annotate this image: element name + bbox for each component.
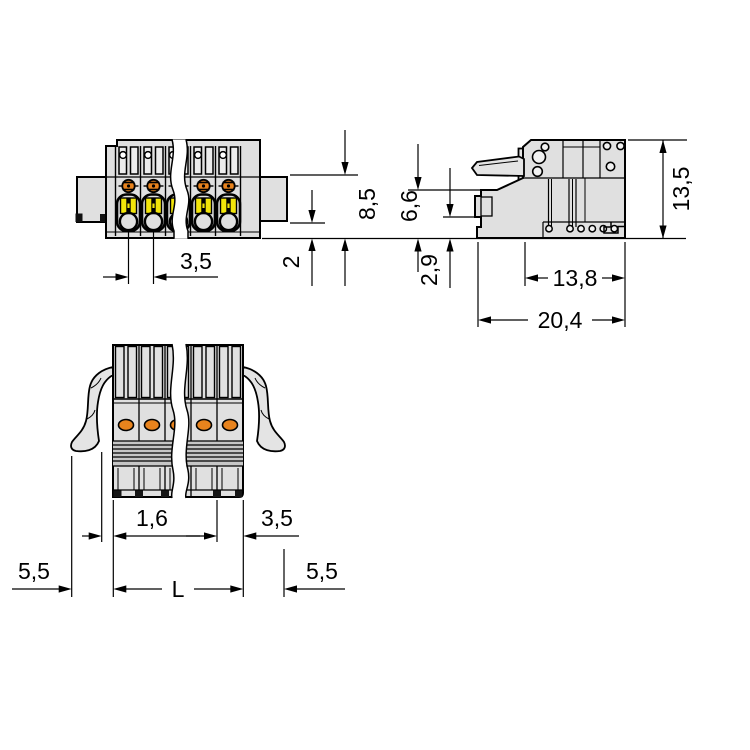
front-view [76, 140, 288, 239]
dim-label-height: 8,5 [354, 188, 380, 220]
side-view [472, 140, 625, 238]
dim-label-lever-ext-left: 5,5 [18, 558, 50, 584]
latch-lever [472, 157, 524, 177]
side-housing [475, 140, 625, 238]
dim-label-pitch: 3,5 [180, 248, 212, 274]
dim-label-end-pitch: 3,5 [261, 505, 293, 531]
bottom-view [71, 344, 285, 498]
locking-lever-right [243, 367, 285, 451]
dim-label-lever-offset: 1,6 [136, 505, 168, 531]
dim-label-latch-height: 2,9 [416, 254, 442, 286]
dim-label-rail-offset: 2 [278, 256, 304, 269]
rail-notch [76, 214, 83, 223]
connector-dimension-drawing: 3,5 8,5 2 [0, 0, 750, 750]
locking-lever-left [71, 367, 113, 451]
dim-label-length: L [172, 576, 185, 602]
dim-label-lever-ext-right: 5,5 [306, 558, 338, 584]
dim-label-total-height: 13,5 [668, 167, 694, 212]
dim-label-housing-depth: 13,8 [553, 265, 598, 291]
dim-label-overall-depth: 20,4 [538, 307, 583, 333]
right-rail [260, 177, 287, 221]
dim-label-plug-height: 6,6 [396, 190, 422, 222]
technical-drawing-page: 3,5 8,5 2 [0, 0, 750, 750]
